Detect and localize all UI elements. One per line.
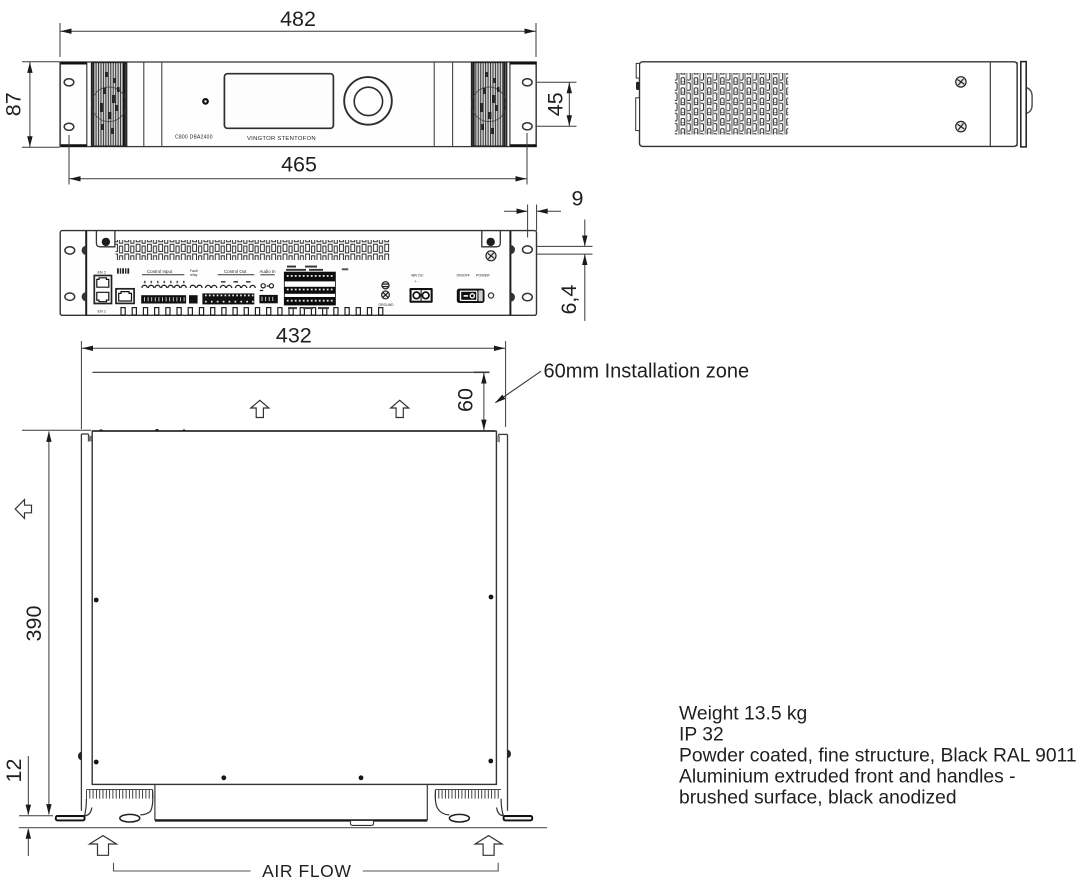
- svg-text:12: 12: [2, 759, 26, 783]
- svg-text:+ -: + -: [415, 280, 420, 284]
- svg-text:60mm Installation zone: 60mm Installation zone: [544, 361, 750, 383]
- svg-text:GROUND: GROUND: [379, 303, 395, 307]
- svg-text:relay: relay: [190, 273, 198, 277]
- svg-text:45: 45: [544, 92, 568, 116]
- svg-text:IP 32: IP 32: [679, 725, 724, 746]
- svg-text:POWER: POWER: [476, 274, 490, 278]
- svg-text:9: 9: [572, 187, 584, 211]
- svg-text:brushed surface, black anodize: brushed surface, black anodized: [679, 788, 957, 809]
- svg-text:ON/OFF: ON/OFF: [457, 274, 471, 278]
- svg-text:432: 432: [276, 324, 312, 348]
- svg-text:Powder coated, fine structure,: Powder coated, fine structure, Black RAL…: [679, 746, 1077, 767]
- svg-text:Audio In: Audio In: [260, 269, 277, 274]
- svg-text:VINGTOR STENTOFON: VINGTOR STENTOFON: [247, 136, 316, 142]
- svg-text:C800 DBA2400: C800 DBA2400: [175, 135, 213, 141]
- svg-text:6,4: 6,4: [557, 285, 581, 315]
- svg-text:Aluminium extruded front and h: Aluminium extruded front and handles -: [679, 767, 1016, 788]
- svg-text:Control Out: Control Out: [224, 269, 247, 274]
- svg-text:48V DC: 48V DC: [411, 274, 424, 278]
- svg-text:87: 87: [2, 92, 26, 116]
- svg-text:EN 2: EN 2: [98, 270, 106, 274]
- svg-text:465: 465: [281, 153, 317, 177]
- svg-text:AIR FLOW: AIR FLOW: [262, 861, 351, 881]
- svg-text:Control Input: Control Input: [147, 269, 173, 274]
- svg-text:60: 60: [454, 388, 478, 412]
- svg-text:482: 482: [280, 7, 316, 31]
- svg-text:EN 1: EN 1: [98, 310, 106, 314]
- svg-text:390: 390: [22, 606, 46, 642]
- svg-text:Weight 13.5 kg: Weight 13.5 kg: [679, 704, 807, 725]
